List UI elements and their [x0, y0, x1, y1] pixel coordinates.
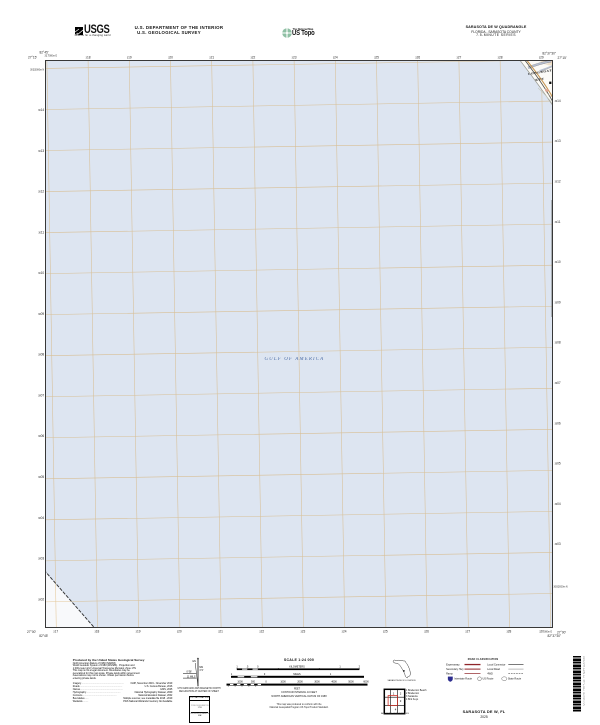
- svg-text:0: 0: [257, 666, 259, 669]
- svg-text:27°15': 27°15': [558, 56, 567, 60]
- svg-text:Local Connector: Local Connector: [487, 664, 505, 667]
- svg-text:3011: 3011: [555, 220, 561, 224]
- svg-text:★: ★: [197, 656, 200, 660]
- svg-text:327: 327: [465, 629, 470, 633]
- svg-text:1°2': 1°2': [199, 670, 204, 672]
- svg-text:3002000m N: 3002000m N: [554, 585, 568, 589]
- svg-text:3006: 3006: [38, 434, 44, 438]
- svg-text:323: 323: [292, 55, 297, 59]
- svg-text:3008: 3008: [555, 341, 561, 345]
- svg-text:3006: 3006: [555, 421, 561, 425]
- svg-text:321: 321: [218, 629, 223, 633]
- svg-text:82°37'30": 82°37'30": [548, 634, 562, 638]
- svg-text:318: 318: [86, 55, 91, 59]
- svg-text:6000: 6000: [363, 681, 369, 684]
- svg-text:1: 1: [330, 673, 332, 676]
- svg-text:3012: 3012: [38, 190, 44, 194]
- svg-text:322: 322: [250, 55, 255, 59]
- svg-text:325: 325: [374, 55, 379, 59]
- svg-text:3005: 3005: [555, 462, 561, 466]
- svg-text:MILES: MILES: [293, 673, 301, 676]
- svg-text:322: 322: [259, 629, 264, 633]
- svg-text:3013: 3013: [555, 139, 561, 143]
- svg-text:328: 328: [506, 629, 511, 633]
- svg-text:321: 321: [209, 55, 214, 59]
- svg-text:3010: 3010: [38, 271, 44, 275]
- svg-text:325: 325: [383, 629, 388, 633]
- svg-text:27°00': 27°00': [27, 630, 36, 634]
- svg-text:3014: 3014: [38, 108, 44, 112]
- svg-text:1: 1: [231, 673, 233, 676]
- svg-text:Local Road: Local Road: [487, 668, 500, 671]
- svg-text:MN: MN: [199, 667, 203, 669]
- svg-text:Secondary Hwy: Secondary Hwy: [446, 668, 464, 671]
- svg-text:3010: 3010: [555, 260, 561, 264]
- svg-text:Interstate Route: Interstate Route: [454, 678, 472, 681]
- svg-text:3003: 3003: [555, 542, 561, 546]
- svg-text:US Route: US Route: [483, 678, 494, 681]
- svg-text:State Route: State Route: [508, 678, 522, 681]
- svg-text:319: 319: [136, 629, 141, 633]
- svg-text:3008: 3008: [38, 353, 44, 357]
- svg-text:324: 324: [333, 55, 338, 59]
- svg-text:4000: 4000: [331, 681, 337, 684]
- svg-text:317000m E: 317000m E: [45, 54, 58, 58]
- svg-text:KILOMETERS: KILOMETERS: [289, 666, 305, 669]
- svg-text:319: 319: [127, 55, 132, 59]
- svg-text:328: 328: [498, 55, 503, 59]
- svg-text:320000m E: 320000m E: [539, 629, 552, 633]
- svg-text:3004: 3004: [38, 516, 44, 520]
- svg-text:GN: GN: [192, 660, 196, 663]
- svg-text:3011: 3011: [38, 230, 44, 234]
- svg-text:0: 0: [264, 673, 266, 676]
- svg-text:326: 326: [415, 55, 420, 59]
- svg-text:1000: 1000: [280, 681, 286, 684]
- svg-text:3007: 3007: [555, 381, 561, 385]
- svg-text:Expressway: Expressway: [446, 664, 460, 667]
- svg-text:3014: 3014: [555, 99, 561, 103]
- svg-text:327: 327: [456, 55, 461, 59]
- svg-text:Ramp: Ramp: [446, 672, 453, 675]
- svg-text:11 MILS: 11 MILS: [187, 676, 196, 678]
- svg-text:320: 320: [168, 55, 173, 59]
- svg-text:500: 500: [251, 681, 256, 684]
- svg-text:326: 326: [424, 629, 429, 633]
- svg-text:.5: .5: [246, 666, 249, 669]
- svg-text:4WD: 4WD: [487, 672, 493, 675]
- svg-text:3002: 3002: [38, 597, 44, 601]
- svg-text:1: 1: [339, 666, 341, 669]
- svg-text:3012: 3012: [555, 180, 561, 184]
- svg-text:3005: 3005: [38, 475, 44, 479]
- svg-text:3009: 3009: [38, 312, 44, 316]
- svg-text:3015000m N: 3015000m N: [30, 67, 44, 71]
- svg-text:324: 324: [342, 629, 347, 633]
- svg-text:0°38': 0°38': [187, 672, 193, 674]
- svg-text:FEET: FEET: [294, 687, 301, 690]
- svg-text:0: 0: [265, 681, 267, 684]
- svg-text:3004: 3004: [555, 502, 561, 506]
- svg-text:3007: 3007: [38, 394, 44, 398]
- svg-text:3003: 3003: [38, 557, 44, 561]
- svg-text:318: 318: [94, 629, 99, 633]
- svg-text:323: 323: [300, 629, 305, 633]
- svg-text:27°15': 27°15': [28, 56, 37, 60]
- svg-text:2: 2: [359, 666, 361, 669]
- svg-text:2000: 2000: [297, 681, 303, 684]
- svg-text:82°45': 82°45': [39, 634, 48, 638]
- svg-text:82°37'30": 82°37'30": [542, 52, 556, 56]
- svg-text:329: 329: [539, 55, 544, 59]
- svg-text:3000: 3000: [314, 681, 320, 684]
- svg-text:317: 317: [53, 629, 58, 633]
- svg-text:3009: 3009: [555, 300, 561, 304]
- svg-text:1: 1: [236, 666, 238, 669]
- svg-text:320: 320: [177, 629, 182, 633]
- svg-text:5000: 5000: [348, 681, 354, 684]
- svg-text:3013: 3013: [38, 149, 44, 153]
- svg-text:1000: 1000: [237, 681, 243, 684]
